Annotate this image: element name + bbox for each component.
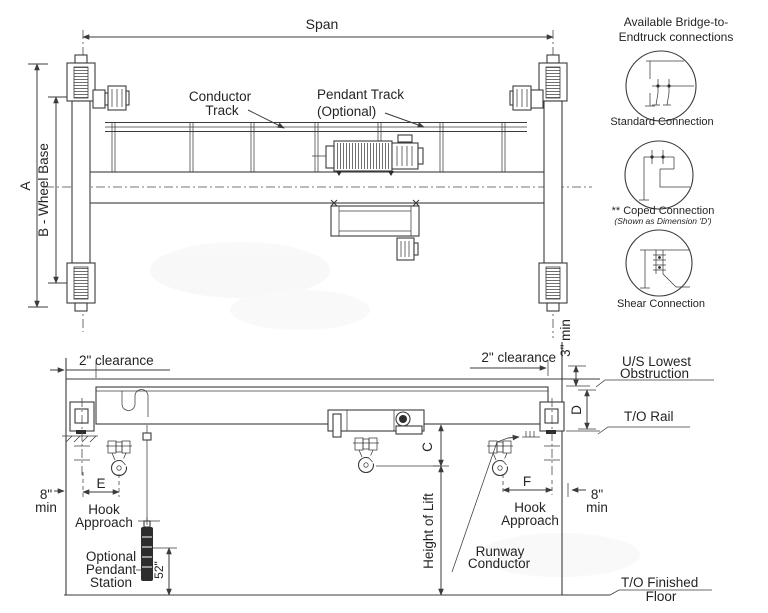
coped-connection-note: (Shown as Dimension 'D') [614, 216, 711, 226]
pendant-station-callout: Optional Pendant Station [86, 549, 141, 590]
endtruck-left-plan [67, 55, 129, 311]
connections-title-2: Endtruck connections [619, 30, 734, 44]
to-floor-2: Floor [646, 589, 677, 604]
dim-a-label: A [17, 181, 33, 191]
standard-connection-label: Standard Connection [610, 116, 713, 128]
wheel-base-label: B - Wheel Base [36, 143, 51, 237]
dimension-52: 52" [152, 548, 177, 595]
bridge-girder-plan [77, 172, 557, 203]
min8-left-dimension: 8" min [35, 487, 64, 515]
hook-left-icon [106, 441, 132, 476]
hoist-motor [392, 143, 418, 169]
to-rail-callout: T/O Rail [566, 409, 690, 434]
pendant-station [141, 425, 153, 581]
clearance-right-dimension: 2" clearance [470, 350, 556, 376]
span-label: Span [306, 16, 339, 32]
pendant-track-label-1: Pendant Track [317, 87, 404, 102]
bridge-drive-motor-left [93, 86, 129, 110]
hook-center-icon [353, 438, 379, 473]
shear-connection-label: Shear Connection [617, 298, 705, 310]
hook-right-icon [487, 441, 513, 476]
dim-c-label: C [420, 442, 435, 452]
coped-connection-detail: ** Coped Connection (Shown as Dimension … [612, 141, 715, 226]
endtruck-left-elevation [62, 398, 98, 478]
min8-left-2: min [35, 500, 57, 515]
hoist-plan [312, 135, 423, 176]
dim-52-label: 52" [152, 561, 166, 579]
bridge-girder-elevation [96, 387, 548, 424]
us-lowest-label-2: Obstruction [620, 366, 689, 381]
bridge-drive-motor-right [510, 86, 543, 110]
pendant-track-callout: Pendant Track (Optional) [317, 87, 424, 127]
endtruck-right-plan [510, 55, 567, 311]
span-dimension: Span [83, 16, 553, 37]
clearance-left-dimension: 2" clearance [50, 353, 170, 378]
standard-connection-detail: Standard Connection [610, 51, 713, 128]
runway-conductor-2: Conductor [468, 556, 531, 571]
hook-approach-right-2: Approach [501, 513, 559, 528]
height-of-lift-dimension: Height of Lift [421, 466, 441, 595]
us-lowest-obstruction-callout: U/S Lowest Obstruction [596, 354, 714, 387]
connections-title-1: Available Bridge-to- [624, 15, 729, 29]
crane-engineering-drawing: Span A B - Wheel Base [0, 0, 768, 613]
hook-approach-right-callout: Hook Approach [501, 500, 559, 528]
min3-dimension: 3" min [558, 319, 590, 386]
dim-e-label: E [96, 476, 105, 491]
track-hangers [112, 122, 505, 172]
dimension-d: D [569, 390, 596, 429]
clearance-right-label: 2" clearance [481, 350, 556, 365]
trolley-plan [331, 200, 419, 260]
dim-f-label: F [523, 474, 531, 489]
conductor-track [105, 122, 527, 172]
pendant-track-label-2: (Optional) [317, 104, 376, 119]
min8-right-2: min [586, 500, 608, 515]
to-floor-1: T/O Finished [621, 575, 698, 590]
to-rail-label: T/O Rail [624, 409, 674, 424]
dimension-wheel-base: B - Wheel Base [36, 97, 68, 283]
runway-conductor-symbol [522, 431, 540, 437]
dimension-f: F [503, 474, 552, 495]
dim-d-label: D [569, 405, 584, 415]
height-of-lift-label: Height of Lift [421, 493, 436, 569]
to-floor-callout: T/O Finished Floor [610, 575, 712, 604]
festoon-loop [122, 390, 148, 417]
shear-connection-detail: Shear Connection [617, 230, 705, 310]
endtruck-right-elevation [522, 398, 564, 478]
trolley-hoist-elevation [328, 410, 424, 437]
min3-label: 3" min [558, 319, 573, 357]
pendant-station-3: Station [90, 575, 132, 590]
connection-details: Available Bridge-to- Endtruck connection… [610, 15, 733, 310]
conductor-track-label-2: Track [205, 103, 238, 118]
hook-approach-left-2: Approach [75, 515, 133, 530]
trolley-motor [397, 238, 414, 260]
min8-right-dimension: 8" min [568, 483, 608, 515]
plan-view: Span A B - Wheel Base [17, 16, 592, 338]
clearance-left-label: 2" clearance [79, 353, 154, 368]
crane-diagram-svg: Span A B - Wheel Base [0, 0, 768, 613]
conductor-track-label-1: Conductor [189, 89, 252, 104]
dimension-e: E [83, 472, 119, 497]
